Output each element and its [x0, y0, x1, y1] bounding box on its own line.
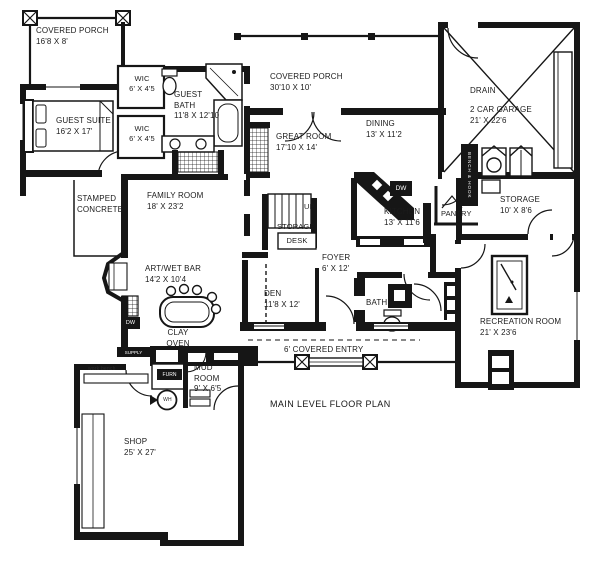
bath-label: BATH	[366, 298, 387, 309]
storage-upper-label: STORAGE 10' X 8'6	[500, 195, 540, 216]
stair-storage-label: STORAGE	[277, 222, 315, 232]
den-label: DEN 11'8 X 12'	[264, 289, 300, 310]
guest-suite-label: GUEST SUITE 16'2 X 17'	[56, 116, 111, 137]
family-room-label: FAMILY ROOM 18' X 23'2	[147, 191, 203, 212]
wic-lower-label: WIC 6' X 4'5	[121, 124, 163, 143]
furnace-tag: FURN	[157, 369, 182, 380]
covered-porch-north-label: COVERED PORCH 30'10 X 10'	[270, 72, 343, 93]
water-heater-tag: WH	[160, 397, 175, 403]
drain-label: DRAIN	[470, 86, 496, 97]
plan-title: MAIN LEVEL FLOOR PLAN	[270, 399, 391, 409]
kitchen-label: KITCHEN 13' X 11'6	[384, 207, 420, 228]
great-room-label: GREAT ROOM 17'10 X 14'	[276, 132, 331, 153]
clay-oven-label: CLAY OVEN	[158, 328, 198, 349]
dining-label: DINING 13' X 11'2	[366, 119, 402, 140]
recreation-room-label: RECREATION ROOM 21' X 23'6	[480, 317, 561, 338]
covered-porch-nw-label: COVERED PORCH 16'8 X 8'	[36, 26, 109, 47]
wic-upper-label: WIC 6' X 4'5	[121, 74, 163, 93]
covered-entry-label: 6' COVERED ENTRY	[284, 345, 363, 356]
recreation-room-walls	[444, 240, 580, 390]
porch-nw	[23, 11, 130, 84]
dishwasher-kitchen-tag: DW	[390, 181, 412, 196]
pantry-label: PANTRY	[441, 209, 472, 219]
stair-up-label: UP	[304, 202, 315, 212]
mud-room-label: MUD ROOM 9' X 6'5	[194, 363, 234, 395]
garage-label: 2 CAR GARAGE 21' X 22'6	[470, 105, 532, 126]
supply-tag: SUPPLY	[117, 347, 150, 357]
art-wet-bar-label: ART/WET BAR 14'2 X 10'4	[145, 264, 201, 285]
guest-bath-label: GUEST BATH 11'8 X 12'10	[174, 90, 222, 122]
foyer-label: FOYER 6' X 12'	[322, 253, 350, 274]
floor-plan: COVERED PORCH 16'8 X 8' GUEST SUITE 16'2…	[0, 0, 600, 564]
shop-label: SHOP 25' X 27'	[124, 437, 156, 458]
dishwasher-bar-tag: DW	[121, 317, 140, 329]
work-bench-label: work bench	[88, 366, 116, 372]
stamped-concrete-label: STAMPED CONCRETE	[77, 194, 123, 215]
bench-hook-tag: BENCH & HOOK	[461, 144, 478, 206]
desk-label: DESK	[278, 236, 316, 246]
